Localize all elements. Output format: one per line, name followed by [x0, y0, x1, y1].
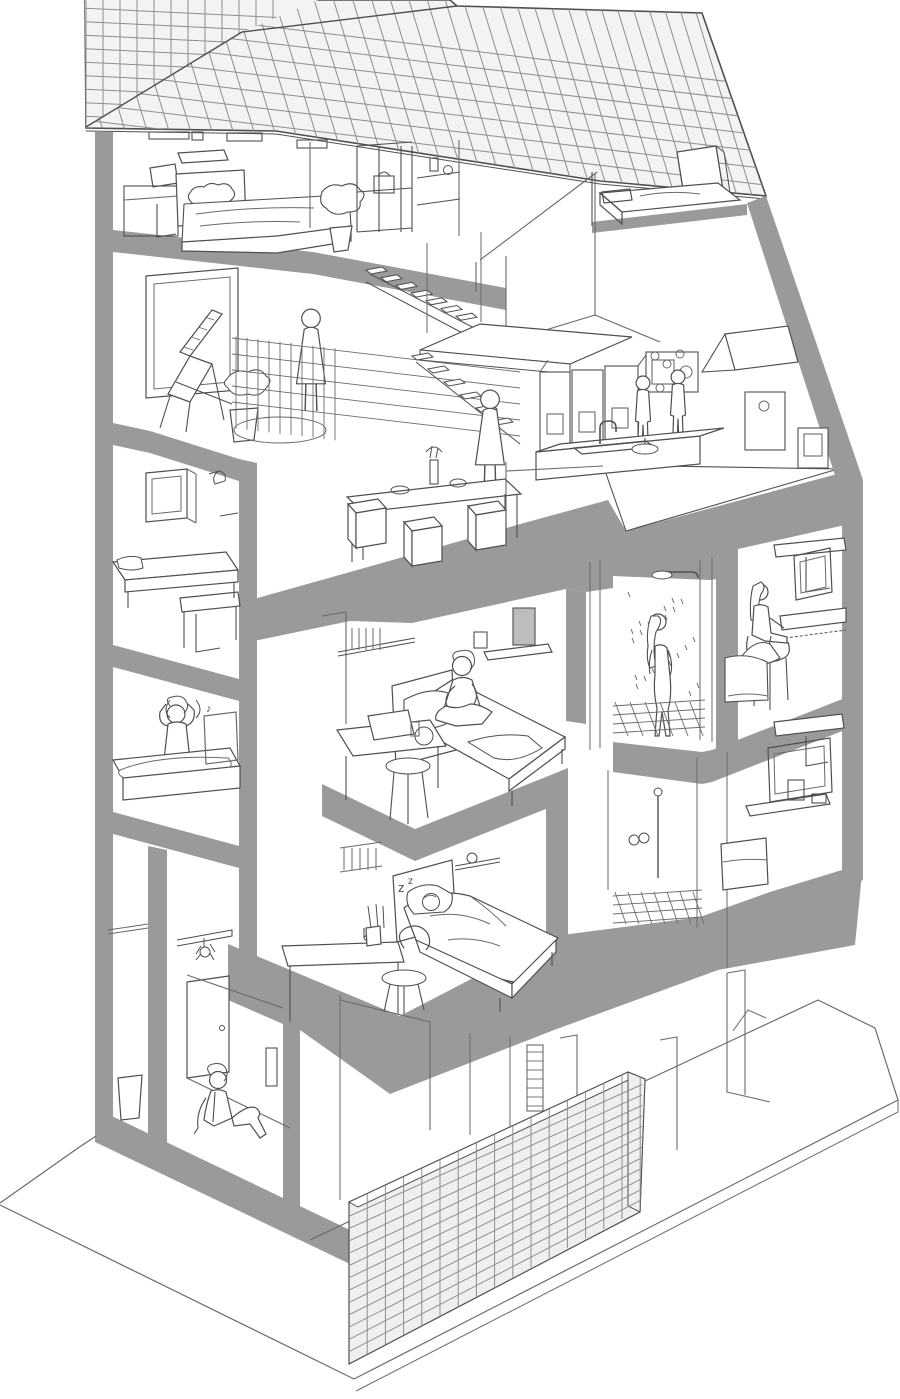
- svg-text:z: z: [408, 876, 413, 887]
- svg-text:♪: ♪: [206, 703, 212, 715]
- svg-text:z: z: [398, 880, 405, 895]
